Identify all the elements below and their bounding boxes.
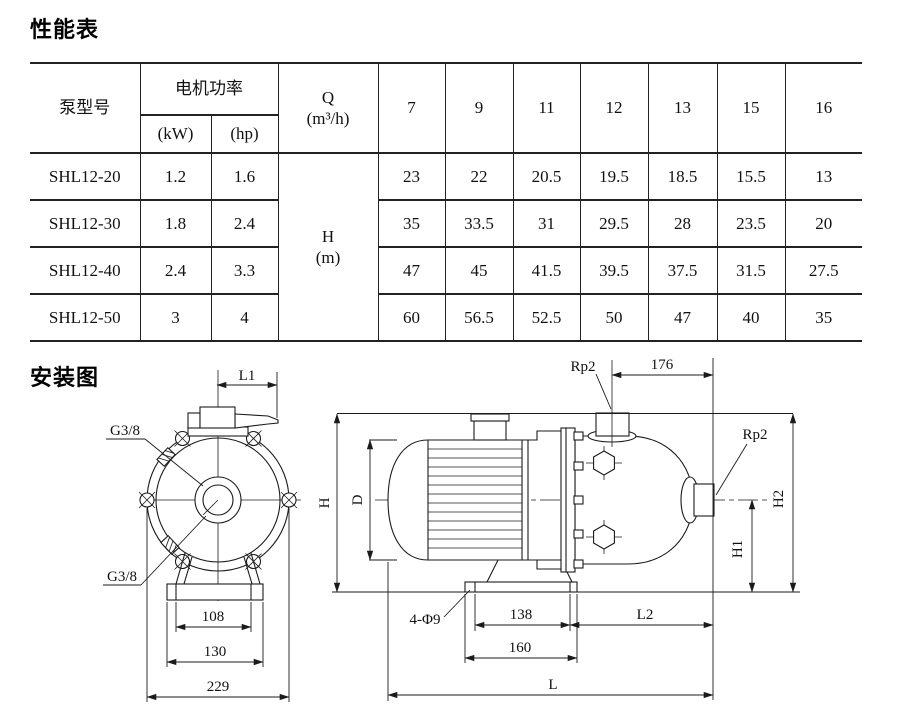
cell-head: 31.5 [717, 247, 785, 294]
discharge-port-side [681, 477, 714, 523]
dim-130-label: 130 [204, 644, 227, 660]
cell-head: 50 [580, 294, 648, 341]
terminal-box [471, 414, 509, 440]
col-header-flow-11: 11 [513, 63, 580, 153]
cell-head: 28 [648, 200, 717, 247]
dim-176: 176 [612, 357, 713, 375]
label-holes: 4-Φ9 [410, 590, 470, 628]
cell-head: 56.5 [445, 294, 513, 341]
base-plate [465, 582, 577, 592]
row-model: SHL12-40 [30, 247, 140, 294]
col-header-hp: (hp) [211, 115, 278, 153]
head-symbol: H [322, 227, 334, 246]
dim-h2-label: H2 [771, 490, 787, 508]
cell-kw: 2.4 [140, 247, 211, 294]
flow-symbol: Q [322, 88, 334, 107]
cell-head: 15.5 [717, 153, 785, 200]
cell-hp: 1.6 [211, 153, 278, 200]
col-header-flow-15: 15 [717, 63, 785, 153]
front-view-drawing: L1 G3/8 G3/8 108 [103, 368, 301, 702]
pump-head-body [575, 436, 693, 564]
dim-160: 160 [465, 594, 577, 663]
cell-kw: 1.8 [140, 200, 211, 247]
cell-head: 35 [785, 294, 862, 341]
dim-108-label: 108 [202, 609, 225, 625]
col-header-flow-16: 16 [785, 63, 862, 153]
cell-head: 20 [785, 200, 862, 247]
dim-l1-label: L1 [239, 368, 256, 384]
holes-label: 4-Φ9 [410, 612, 441, 628]
cell-head: 27.5 [785, 247, 862, 294]
label-g38-bottom: G3/8 [103, 516, 206, 585]
cell-head: 23 [378, 153, 445, 200]
cell-head: 40 [717, 294, 785, 341]
datasheet-page: 性能表 泵型号 电机功率 Q (m³/h) 7 9 11 12 13 15 16… [0, 0, 900, 718]
g38-bottom-label: G3/8 [107, 569, 137, 585]
row-model: SHL12-20 [30, 153, 140, 200]
g38-port-lower [161, 536, 179, 555]
dim-d-label: D [350, 494, 366, 505]
dim-h-label: H [317, 497, 333, 508]
rp2-top-label: Rp2 [570, 359, 595, 375]
col-header-motor-power: 电机功率 [140, 63, 278, 115]
cell-head: 18.5 [648, 153, 717, 200]
dim-l2-label: L2 [637, 607, 654, 623]
cell-head: 45 [445, 247, 513, 294]
dim-h1-label: H1 [730, 540, 746, 558]
cell-head: 60 [378, 294, 445, 341]
cell-head: 20.5 [513, 153, 580, 200]
rp2-side-label: Rp2 [742, 427, 767, 443]
cell-hp: 3.3 [211, 247, 278, 294]
col-header-model: 泵型号 [30, 63, 140, 153]
head-unit: (m) [316, 248, 341, 267]
cell-hp: 4 [211, 294, 278, 341]
row-model: SHL12-30 [30, 200, 140, 247]
cell-head: 23.5 [717, 200, 785, 247]
row-model: SHL12-50 [30, 294, 140, 341]
front-view-top-fitting [188, 407, 278, 436]
installation-diagram-svg: L1 G3/8 G3/8 108 [0, 350, 900, 718]
pump-foot [487, 560, 572, 582]
label-rp2-top: Rp2 [570, 359, 611, 409]
cell-head: 33.5 [445, 200, 513, 247]
cell-head: 22 [445, 153, 513, 200]
dim-229-label: 229 [207, 679, 230, 695]
col-header-flow-13: 13 [648, 63, 717, 153]
side-view-drawing: H D 176 Rp2 Rp2 [317, 357, 800, 701]
cell-head: 47 [648, 294, 717, 341]
col-header-flow: Q (m³/h) [278, 63, 378, 153]
dim-176-label: 176 [651, 357, 674, 373]
cell-kw: 1.2 [140, 153, 211, 200]
cell-head: 52.5 [513, 294, 580, 341]
dim-l2: L2 [570, 607, 713, 625]
cell-head: 29.5 [580, 200, 648, 247]
flow-unit: (m³/h) [307, 109, 350, 128]
col-header-kw: (kW) [140, 115, 211, 153]
cell-head: 13 [785, 153, 862, 200]
cell-hp: 2.4 [211, 200, 278, 247]
dim-108: 108 [176, 602, 251, 632]
cell-kw: 3 [140, 294, 211, 341]
cell-head: 41.5 [513, 247, 580, 294]
dim-h1: H1 [730, 500, 752, 592]
cell-head: 31 [513, 200, 580, 247]
cell-head: 35 [378, 200, 445, 247]
performance-table-title: 性能表 [30, 12, 99, 44]
dim-l-label: L [548, 677, 557, 693]
cell-head: 19.5 [580, 153, 648, 200]
head-unit-cell: H (m) [278, 153, 378, 341]
performance-table: 泵型号 电机功率 Q (m³/h) 7 9 11 12 13 15 16 (kW… [30, 62, 862, 342]
cell-head: 37.5 [648, 247, 717, 294]
cell-head: 47 [378, 247, 445, 294]
col-header-flow-12: 12 [580, 63, 648, 153]
col-header-flow-9: 9 [445, 63, 513, 153]
dim-160-label: 160 [509, 640, 532, 656]
dim-h2: H2 [771, 414, 793, 592]
col-header-flow-7: 7 [378, 63, 445, 153]
cell-head: 39.5 [580, 247, 648, 294]
g38-top-label: G3/8 [110, 423, 140, 439]
dim-h: H [317, 414, 337, 592]
dim-138: 138 [475, 594, 570, 631]
motor-body [388, 440, 528, 560]
label-rp2-side: Rp2 [716, 427, 768, 495]
dim-138-label: 138 [510, 607, 533, 623]
